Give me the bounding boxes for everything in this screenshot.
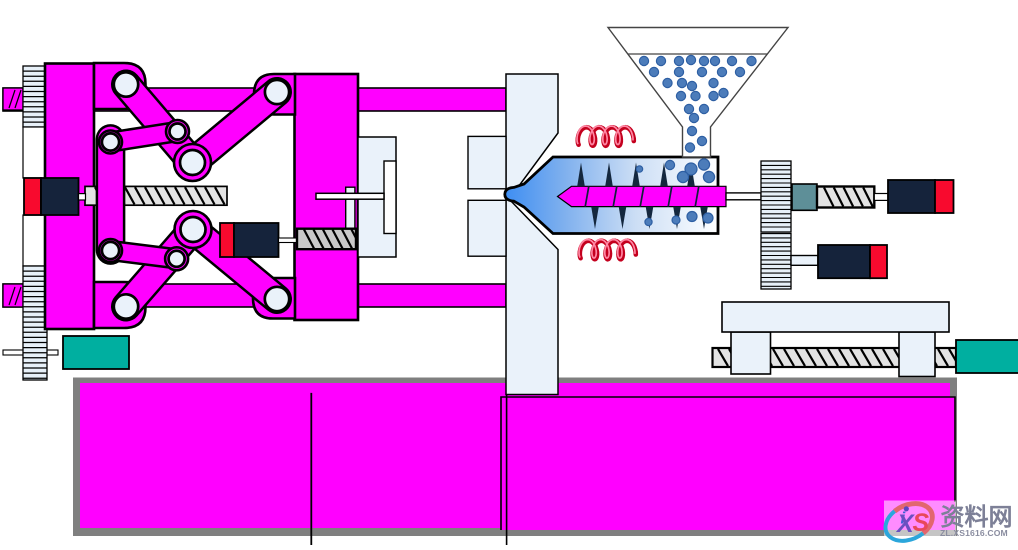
svg-text:ZL.XS1616.COM: ZL.XS1616.COM <box>940 528 1008 538</box>
svg-text:S: S <box>913 509 930 537</box>
svg-text:资料网: 资料网 <box>941 504 1013 531</box>
